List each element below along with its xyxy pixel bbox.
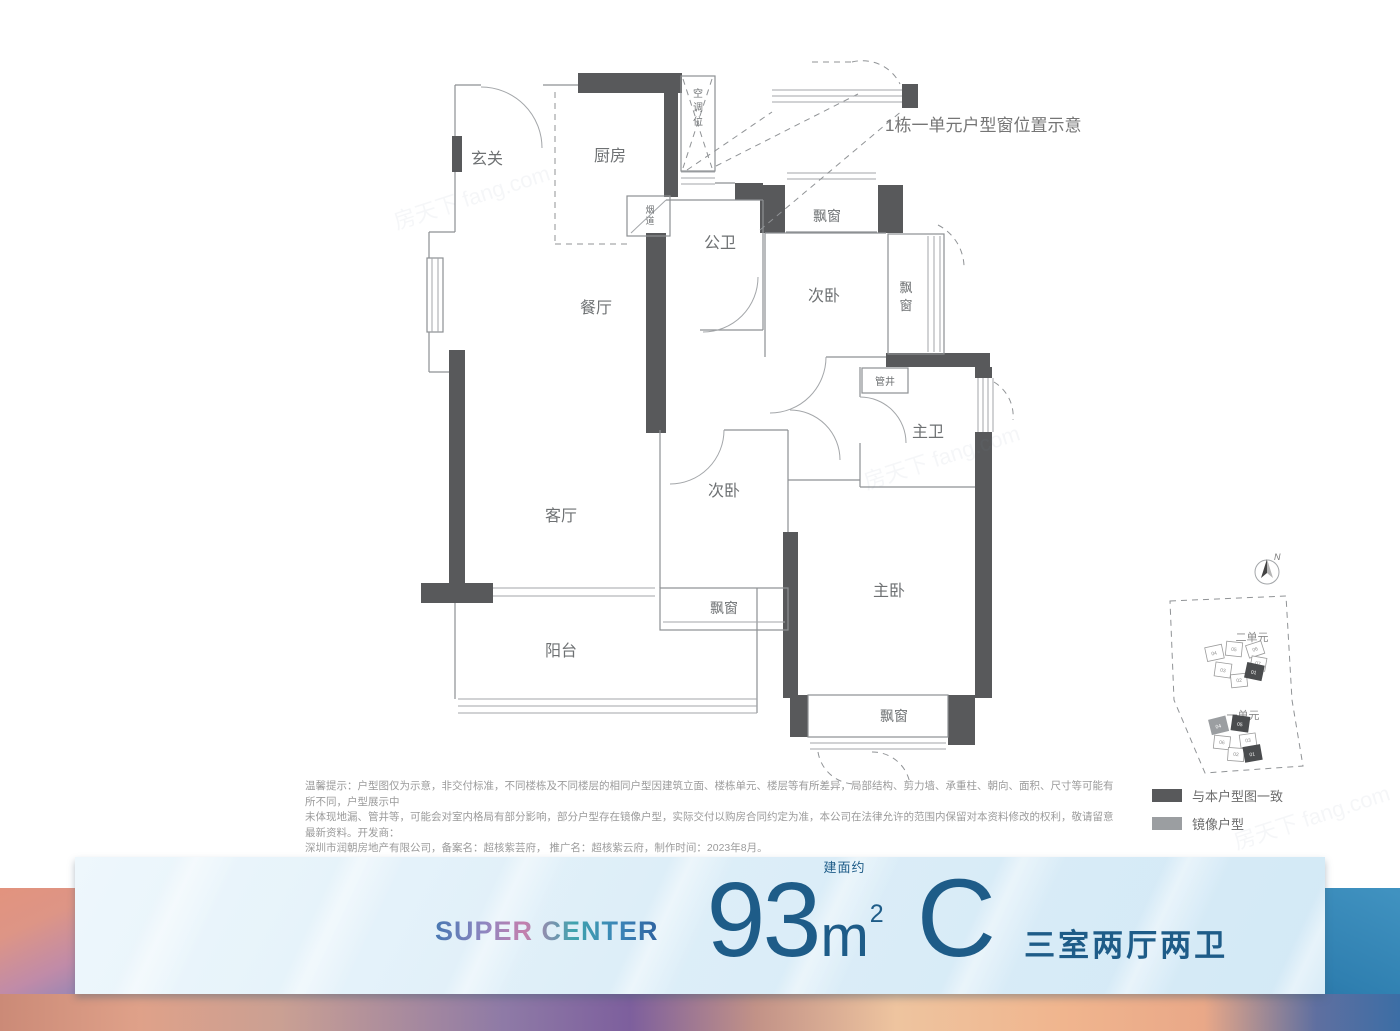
window-position-note: 1栋一单元户型窗位置示意	[885, 116, 1081, 135]
room-label-balcony: 阳台	[545, 642, 577, 660]
banner-content: SUPER CENTER 93 建面约m2 C 三室两厅两卫	[75, 857, 1325, 994]
area-number: 93	[707, 861, 819, 980]
room-label-bedroom2: 次卧	[808, 287, 840, 305]
site-map: N 二单元 04 05 06 07 03 02 01 一单元 04 05 06 …	[1170, 552, 1303, 773]
room-label-living: 客厅	[545, 507, 577, 525]
legend-swatch-match	[1152, 789, 1182, 802]
room-label-bay3: 飘窗	[710, 600, 738, 616]
room-label-bay2-char2: 窗	[899, 298, 912, 313]
brand-logo-text: SUPER CENTER	[435, 916, 659, 947]
legend-label-mirror: 镜像户型	[1192, 814, 1244, 833]
wall-outlines	[427, 61, 1013, 784]
room-label-master-bedroom: 主卧	[873, 582, 905, 600]
walls	[421, 73, 992, 745]
unit-number: 05	[1231, 647, 1237, 654]
ac-label-char2: 调	[693, 102, 703, 114]
legend-label-match: 与本户型图一致	[1192, 786, 1283, 805]
disclaimer-line1: 温馨提示：户型图仅为示意，非交付标准，不同楼栋及不同楼层的相同户型因建筑立面、楼…	[305, 779, 1117, 810]
disclaimer-line3: 深圳市润朝房地产有限公司，备案名：超核紫芸府， 推广名：超核紫云府，制作时间：2…	[305, 841, 1117, 857]
unit-number: 02	[1233, 752, 1239, 758]
unit-number: 05	[1237, 722, 1244, 729]
area-superscript: 2	[870, 900, 884, 928]
unit-number: 03	[1220, 668, 1227, 675]
sitemap-unit1-buildings: 04 05 06 03 02 01	[1209, 715, 1263, 762]
unit-number: 02	[1236, 678, 1242, 685]
room-label-bay1: 飘窗	[813, 208, 841, 224]
legend-row-match: 与本户型图一致	[1152, 786, 1283, 805]
disclaimer: 温馨提示：户型图仅为示意，非交付标准，不同楼栋及不同楼层的相同户型因建筑立面、楼…	[305, 779, 1117, 857]
unit-number: 06	[1219, 740, 1225, 747]
sitemap-unit2-label: 二单元	[1236, 631, 1269, 644]
disclaimer-line2: 未体现地漏、管井等，可能会对室内格局有部分影响，部分户型存在镜像户型，实际交付以…	[305, 810, 1117, 841]
room-label-master-bath: 主卫	[912, 423, 944, 441]
room-label-entry: 玄关	[471, 150, 503, 168]
area-unit: m	[820, 904, 868, 969]
unit-number: 03	[1245, 738, 1252, 745]
legend-swatch-mirror	[1152, 817, 1182, 830]
room-label-kitchen: 厨房	[594, 147, 626, 165]
ac-label-char3: 位	[693, 115, 703, 128]
flue-label-char2: 道	[645, 215, 654, 226]
flue-label-char1: 烟	[645, 204, 654, 215]
legend-row-mirror: 镜像户型	[1152, 814, 1283, 833]
type-description: 三室两厅两卫	[1024, 920, 1228, 965]
legend: 与本户型图一致 镜像户型	[1152, 786, 1283, 842]
area-unit-block: 建面约m2	[820, 903, 882, 970]
room-label-pipe-shaft: 管井	[875, 375, 895, 388]
room-label-dining: 餐厅	[580, 299, 612, 317]
sitemap-unit2-buildings: 04 05 06 07 03 02 01	[1205, 641, 1267, 688]
compass-icon: N	[1255, 552, 1281, 584]
area-prefix: 建面约	[823, 857, 865, 876]
room-label-bay2-char1: 飘	[899, 280, 912, 295]
banner: SUPER CENTER 93 建面约m2 C 三室两厅两卫	[75, 857, 1325, 994]
ac-label-char1: 空	[693, 87, 703, 100]
room-label-public-bath: 公卫	[704, 235, 736, 252]
room-label-bay4: 飘窗	[880, 708, 908, 724]
room-label-bedroom3: 次卧	[708, 482, 740, 500]
type-letter: C	[917, 857, 996, 980]
compass-north-label: N	[1274, 552, 1281, 562]
